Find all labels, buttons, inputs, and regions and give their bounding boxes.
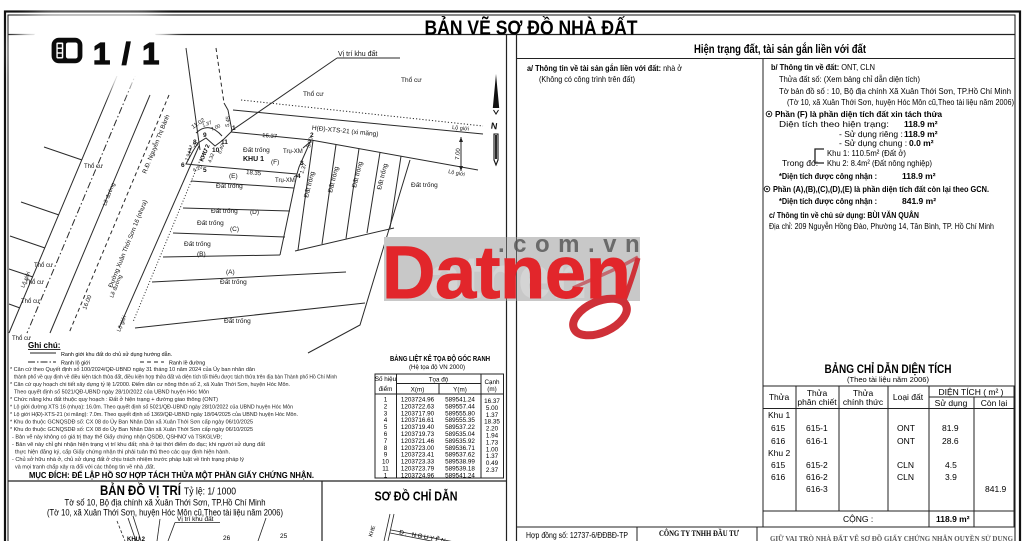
svg-text:Ranh giới khu đất do chủ sử dụ: Ranh giới khu đất do chủ sử dụng hướng d… [61,351,172,358]
svg-text:(m): (m) [487,386,496,393]
svg-text:Đ. NGUYỄN: Đ. NGUYỄN [399,527,448,541]
svg-text:thành phố về quy định về điều: thành phố về quy định về điều kiện tách … [14,374,337,381]
svg-text:MỤC ĐÍCH: ĐỂ LẬP HỒ SƠ HỢP TÁC: MỤC ĐÍCH: ĐỂ LẬP HỒ SƠ HỢP TÁCH THỬA MỘT… [29,470,314,480]
svg-text:(Hệ tọa độ VN 2000): (Hệ tọa độ VN 2000) [409,364,465,371]
svg-text:X(m): X(m) [411,387,425,394]
svg-text:SƠ ĐỒ CHỈ DẪN: SƠ ĐỒ CHỈ DẪN [375,489,458,504]
svg-text:* Căn cứ quy hoạch chi tiết xâ: * Căn cứ quy hoạch chi tiết xây dựng tỷ … [10,381,290,388]
svg-text:Vị trí khu đất: Vị trí khu đất [177,514,214,523]
svg-text:1203724.96: 1203724.96 [401,472,435,479]
svg-text:* Căn cứ theo Quyết định số 10: * Căn cứ theo Quyết định số 100/2024/QĐ-… [10,366,255,373]
svg-text:* Lộ giới đường XTS 16 (nhựa):: * Lộ giới đường XTS 16 (nhựa): 16.0m. Th… [10,404,293,411]
svg-text:* Lộ giới H(Đ)-XTS-21 (xi măng: * Lộ giới H(Đ)-XTS-21 (xi măng): 7.0m. T… [10,411,298,418]
svg-text:* Khu đo thuộc GCNQSDĐ số: CX: * Khu đo thuộc GCNQSDĐ số: CX 08 do Ủy B… [10,419,253,426]
svg-text:Y(m): Y(m) [453,387,467,394]
svg-text:KHU 2: KHU 2 [127,537,146,541]
svg-text:Tờ số 10, Bộ địa chính xã Xuân: Tờ số 10, Bộ địa chính xã Xuân Thới Sơn,… [65,498,266,508]
svg-text:1: 1 [384,472,388,479]
svg-text:- Chủ sở hữu nhà ở, chủ sử dụn: - Chủ sở hữu nhà ở, chủ sử dụng đất ở ch… [12,456,244,463]
svg-text:Số hiệu: Số hiệu [375,374,397,383]
svg-text:và mọi tranh chấp xảy ra đối v: và mọi tranh chấp xảy ra đối với các thô… [15,465,155,471]
svg-text:Tọa độ: Tọa độ [429,377,449,384]
svg-text:(Tờ 10, xã Xuân Thới Sơn, huyệ: (Tờ 10, xã Xuân Thới Sơn, huyện Hóc Môn … [47,508,283,518]
svg-text:589541.24: 589541.24 [445,472,475,479]
svg-text:Tỷ lệ: 1/ 1000: Tỷ lệ: 1/ 1000 [184,486,236,498]
svg-text:Ghi chú:: Ghi chú: [28,341,60,350]
svg-text:2.37: 2.37 [486,467,499,474]
svg-text:BẢN ĐỒ VỊ TRÍ: BẢN ĐỒ VỊ TRÍ [100,483,182,498]
svg-text:Theo quyết định số 5021/QĐ-UBN: Theo quyết định số 5021/QĐ-UBND ngày 28/… [14,389,209,396]
svg-text:điểm: điểm [379,385,393,393]
svg-text:Cạnh: Cạnh [484,379,500,386]
svg-text:KHE: KHE [368,525,377,538]
svg-text:* Khu đo thuộc GCNQSDĐ số: CX: * Khu đo thuộc GCNQSDĐ số: CX 08 do Ủy B… [10,426,253,433]
svg-text:thực hiện đăng ký, cấp Giấy ch: thực hiện đăng ký, cấp Giấy chứng nhận t… [15,449,230,456]
svg-text:* Chức năng khu đất thuộc quy: * Chức năng khu đất thuộc quy hoạch : Đấ… [10,396,218,403]
svg-text:BẢNG LIỆT KÊ TỌA ĐỘ GÓC RANH: BẢNG LIỆT KÊ TỌA ĐỘ GÓC RANH [390,354,490,363]
svg-text:Ranh lộ giới: Ranh lộ giới [61,361,90,367]
svg-text:25: 25 [280,533,288,540]
svg-text:Ranh lề đường: Ranh lề đường [169,361,205,367]
svg-text:- Bản vẽ này không có giá trị: - Bản vẽ này không có giá trị thay thế G… [12,435,222,441]
svg-text:- Bản vẽ này chỉ ghi nhận hiện: - Bản vẽ này chỉ ghi nhận hiện trạng vị … [12,441,266,448]
svg-text:26: 26 [223,535,231,541]
